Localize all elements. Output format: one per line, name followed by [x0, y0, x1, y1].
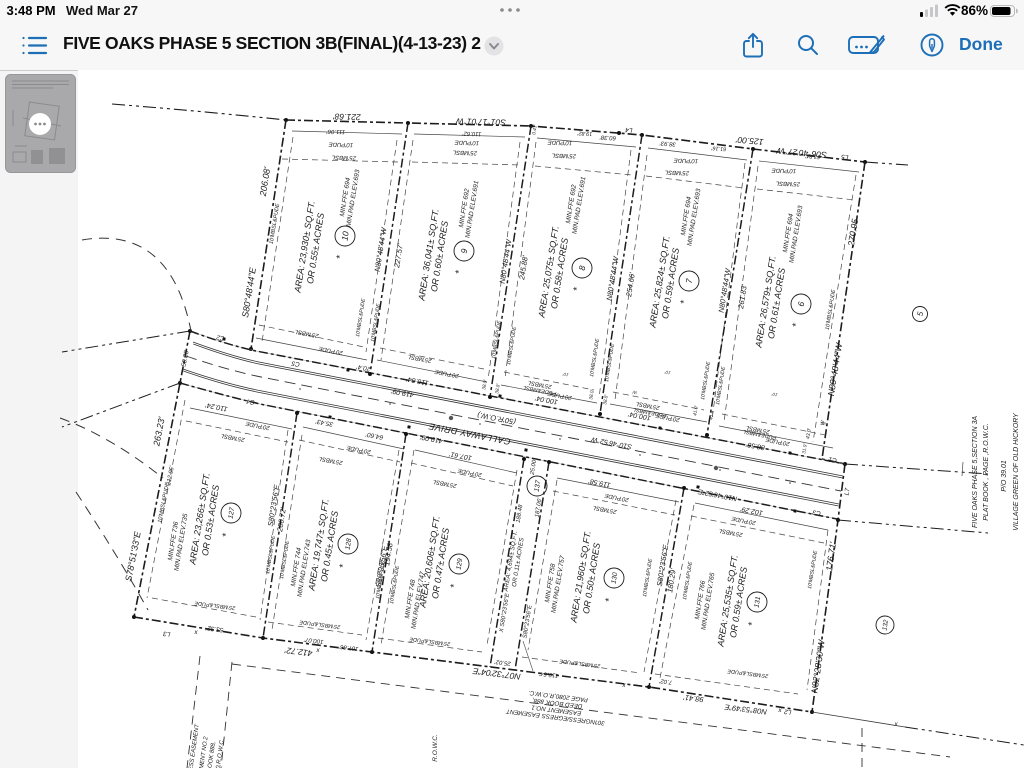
- svg-text:25'MBSL: 25'MBSL: [665, 169, 690, 176]
- svg-text:10'PUDE: 10'PUDE: [454, 139, 480, 146]
- svg-text:P/O 39.01: P/O 39.01: [1001, 460, 1008, 492]
- svg-text:19.82': 19.82': [576, 130, 592, 137]
- svg-text:L4: L4: [625, 126, 633, 133]
- svg-text:10'PUDE: 10'PUDE: [328, 141, 354, 148]
- svg-text:10'PUDE: 10'PUDE: [771, 167, 797, 174]
- svg-text:S01°17'01"W: S01°17'01"W: [455, 116, 506, 127]
- svg-text:111.06': 111.06': [326, 128, 346, 135]
- svg-text:10: 10: [339, 230, 350, 241]
- svg-text:221.68': 221.68': [333, 112, 362, 123]
- svg-text:L7: L7: [844, 487, 852, 496]
- svg-text:R.O.W.C.: R.O.W.C.: [432, 734, 439, 762]
- svg-text:25'MBSL: 25'MBSL: [332, 154, 357, 161]
- svg-text:25'MBSL: 25'MBSL: [552, 152, 577, 159]
- svg-text:25'MBSL: 25'MBSL: [453, 149, 478, 156]
- svg-text:VILLAGE GREEN OF OLD HICKORY: VILLAGE GREEN OF OLD HICKORY: [1013, 412, 1020, 531]
- svg-text:FIVE OAKS PHASE 5,SECTION 3A: FIVE OAKS PHASE 5,SECTION 3A: [972, 416, 979, 528]
- svg-text:10'PUDE: 10'PUDE: [547, 139, 573, 146]
- svg-text:10'PUDE: 10'PUDE: [673, 157, 699, 164]
- svg-text:110.62': 110.62': [461, 130, 481, 137]
- svg-text:L2: L2: [783, 708, 791, 716]
- svg-text:L3: L3: [162, 630, 170, 638]
- svg-text:60.38': 60.38': [599, 134, 616, 141]
- svg-text:L5: L5: [841, 153, 849, 161]
- svg-text:25'MBSL: 25'MBSL: [776, 180, 801, 187]
- svg-text:38.93': 38.93': [659, 139, 676, 146]
- svg-text:PLAT BOOK , PAGE ,R.: PLAT BOOK , PAGE ,R.O.W.C.: [983, 423, 990, 521]
